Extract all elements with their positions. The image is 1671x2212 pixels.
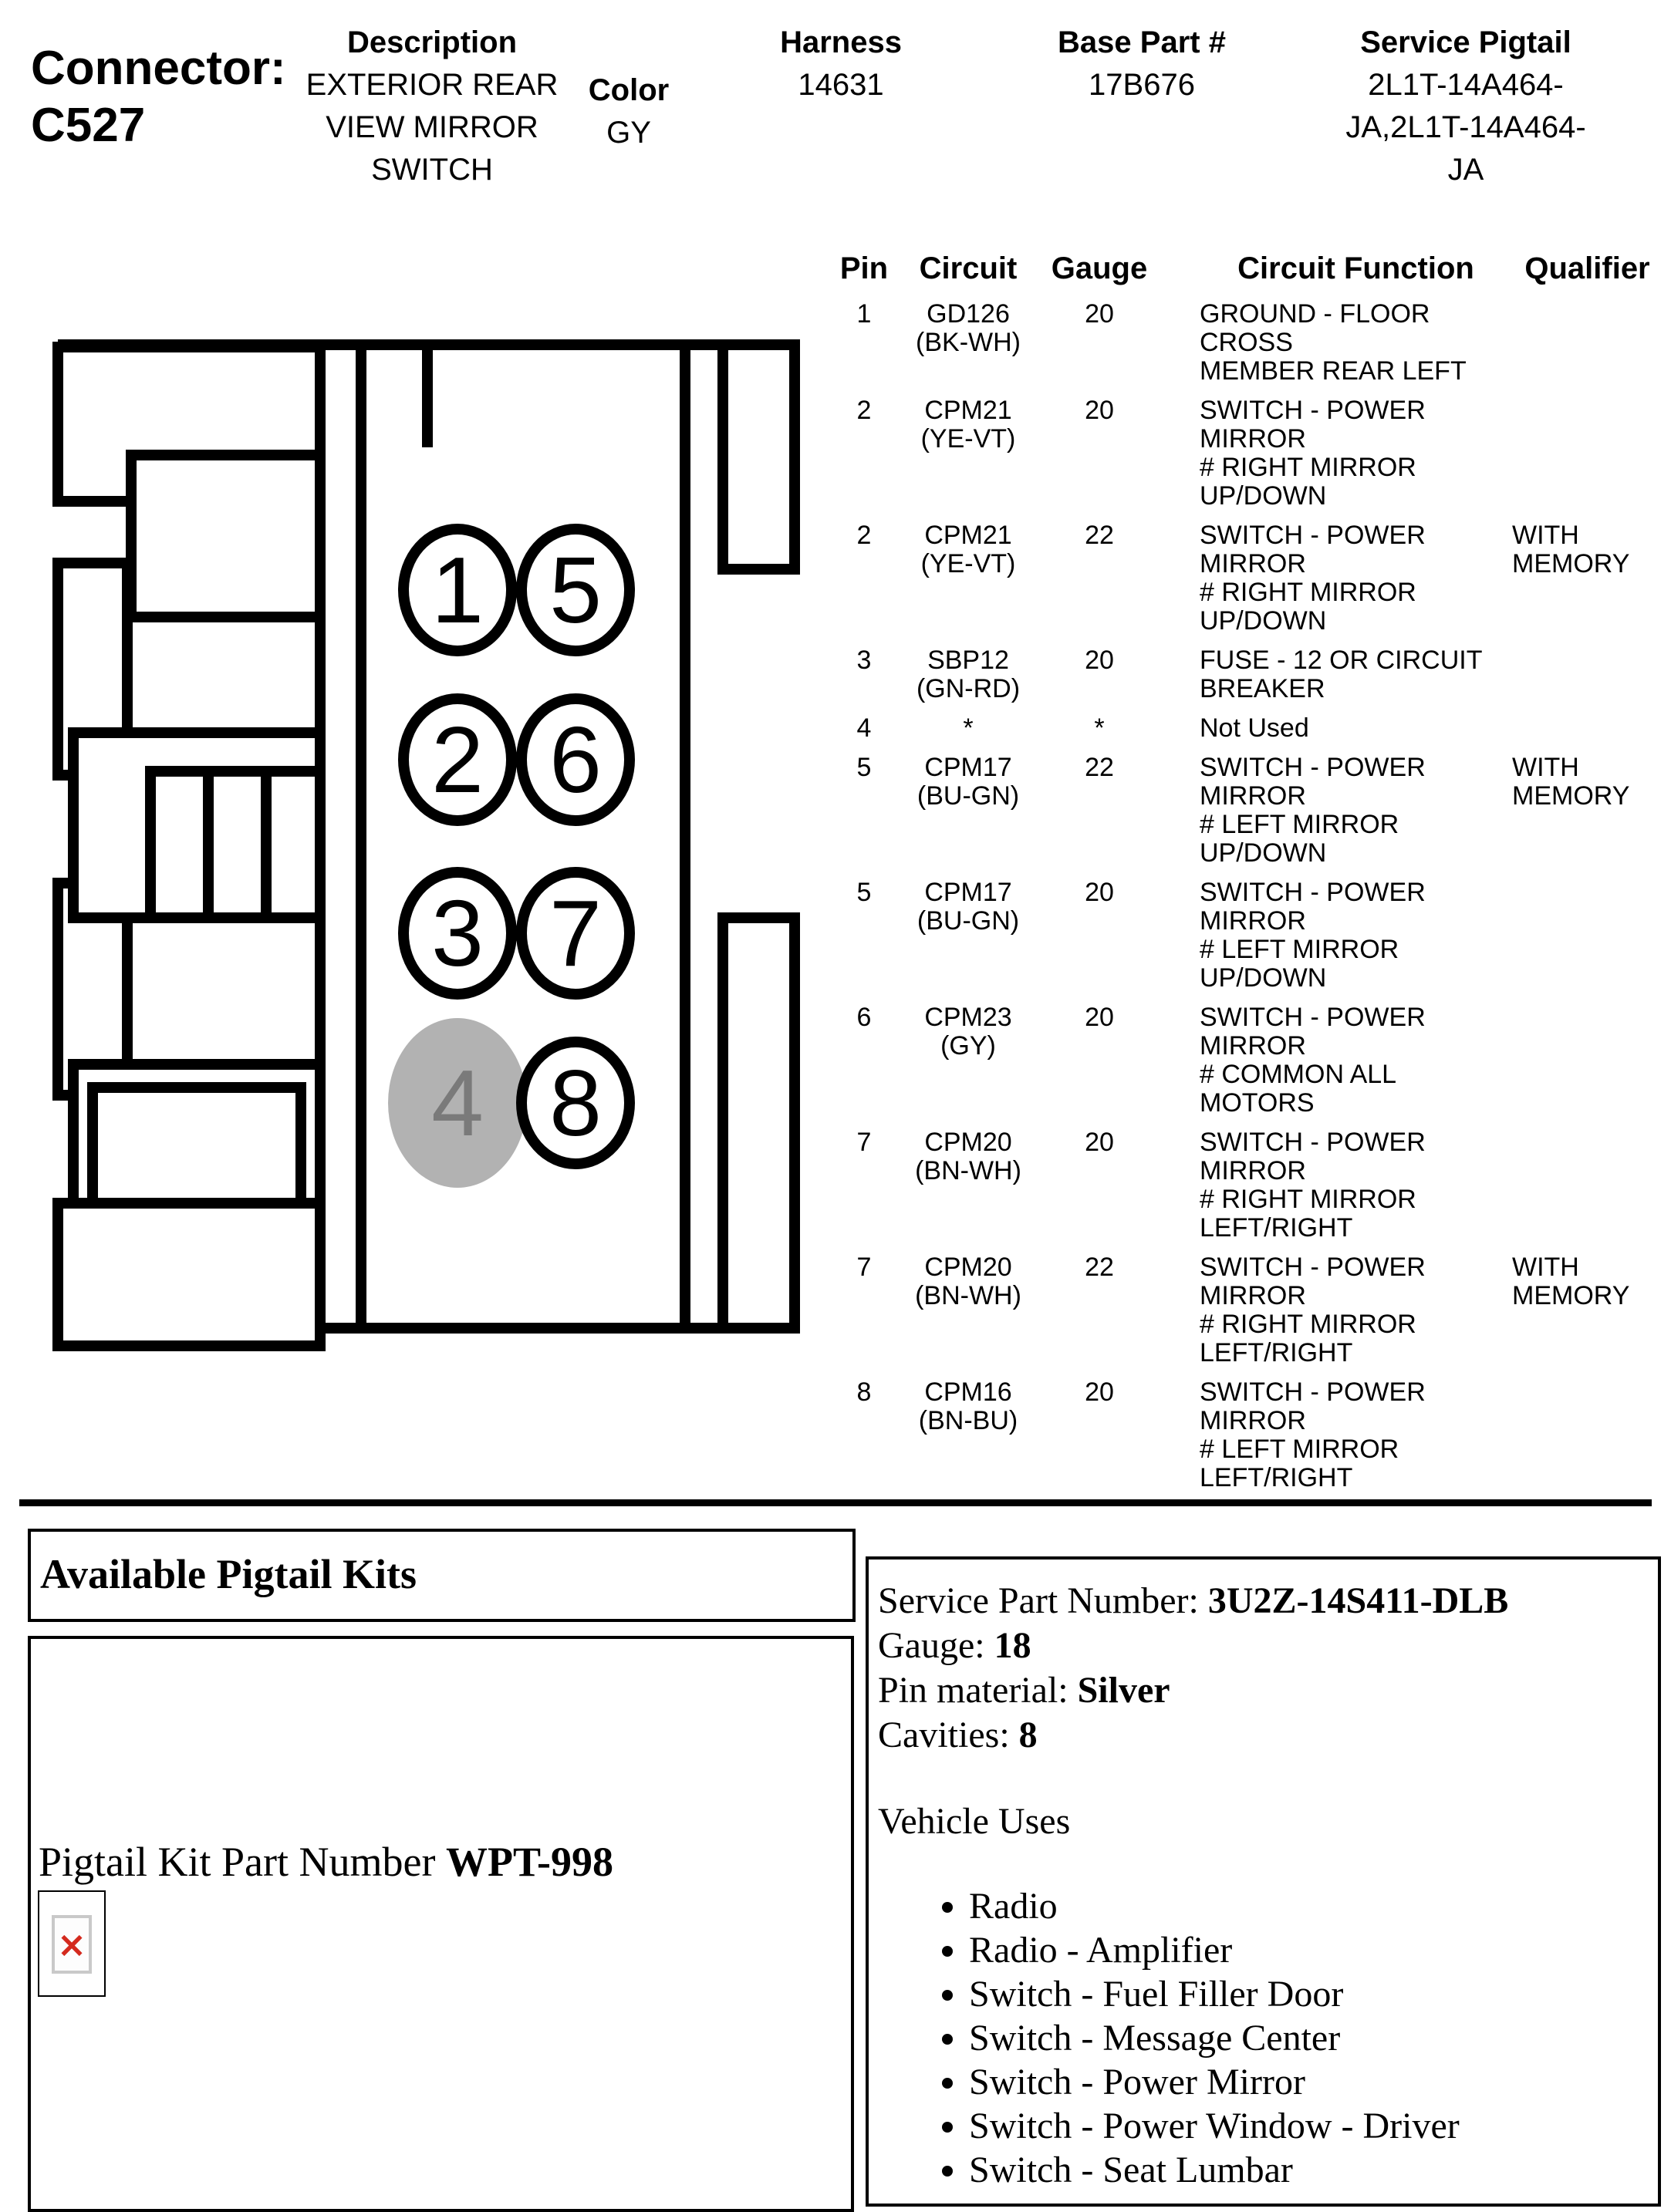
circuit-color-code: (BU-GN): [895, 782, 1041, 811]
circuit-id: CPM20: [895, 1253, 1041, 1282]
circuit-function-line: SWITCH - POWER MIRROR: [1200, 1128, 1512, 1185]
circuit-function-line: FUSE - 12 OR CIRCUIT: [1200, 646, 1512, 675]
circuit-function-line: # RIGHT MIRROR: [1200, 578, 1512, 607]
vehicle-use-item: Switch - Power Mirror: [969, 2060, 1647, 2104]
cell-circuit-function: SWITCH - POWER MIRROR# RIGHT MIRRORUP/DO…: [1157, 396, 1512, 511]
circuit-function-line: # LEFT MIRROR UP/DOWN: [1200, 811, 1512, 868]
circuit-id: CPM23: [895, 1003, 1041, 1032]
circuit-function-line: SWITCH - POWER MIRROR: [1200, 1378, 1512, 1435]
connector-face-diagram: 12345678: [46, 324, 810, 1361]
cell-qualifier: [1512, 646, 1663, 703]
available-pigtail-kits-title: Available Pigtail Kits: [40, 1551, 417, 1597]
circuit-id: CPM17: [895, 878, 1041, 907]
header-value-line: 14631: [756, 64, 926, 106]
cell-pin: 5: [833, 878, 895, 993]
header-col-service-pigtail: Service Pigtail 2L1T-14A464-JA,2L1T-14A4…: [1323, 22, 1609, 191]
pin-number: 6: [549, 707, 602, 812]
circuit-id: CPM21: [895, 396, 1041, 425]
pigtail-kit-box: Pigtail Kit Part Number WPT-998 ×: [28, 1636, 854, 2212]
circuit-function-line: # LEFT MIRROR: [1200, 1435, 1512, 1464]
cell-circuit-function: SWITCH - POWER MIRROR# LEFT MIRROR UP/DO…: [1157, 878, 1512, 993]
cell-circuit: CPM23 (GY): [895, 1003, 1041, 1118]
cell-pin: 7: [833, 1128, 895, 1243]
pin-table: Pin Circuit Gauge Circuit Function Quali…: [833, 251, 1663, 1503]
circuit-function-line: UP/DOWN: [1200, 482, 1512, 511]
cell-qualifier: [1512, 878, 1663, 993]
cell-qualifier: [1512, 1003, 1663, 1118]
circuit-function-line: GROUND - FLOOR CROSS: [1200, 300, 1512, 357]
pin-table-header-gauge: Gauge: [1041, 251, 1157, 286]
detail-value: 18: [994, 1625, 1031, 1666]
circuit-id: *: [895, 714, 1041, 743]
cell-circuit: CPM21 (YE-VT): [895, 396, 1041, 511]
header-col-description: Description EXTERIOR REARVIEW MIRRORSWIT…: [270, 22, 594, 191]
qualifier-line: MEMORY: [1512, 782, 1663, 811]
cell-pin: 6: [833, 1003, 895, 1118]
pin-number: 5: [549, 538, 602, 642]
table-row: 7 CPM20 (BN-WH) 22 SWITCH - POWER MIRROR…: [833, 1253, 1663, 1367]
vehicle-use-item: Switch - Message Center: [969, 2016, 1647, 2060]
table-row: 4 * * Not Used: [833, 714, 1663, 743]
vehicle-use-item: Switch - Seat Lumbar: [969, 2148, 1647, 2192]
connector-title: Connector: C527: [31, 40, 286, 154]
circuit-function-line: SWITCH - POWER MIRROR: [1200, 1253, 1512, 1310]
table-row: 5 CPM17 (BU-GN) 22 SWITCH - POWER MIRROR…: [833, 754, 1663, 868]
vehicle-use-item: Radio: [969, 1884, 1647, 1928]
header-value-service-pigtail: 2L1T-14A464-JA,2L1T-14A464-JA: [1323, 64, 1609, 191]
circuit-function-line: # RIGHT MIRROR: [1200, 454, 1512, 482]
pin-number: 2: [431, 707, 484, 812]
header-label-description: Description: [270, 22, 594, 64]
vehicle-uses-list: RadioRadio - AmplifierSwitch - Fuel Fill…: [878, 1884, 1647, 2192]
circuit-function-line: SWITCH - POWER MIRROR: [1200, 396, 1512, 454]
table-row: 2 CPM21 (YE-VT) 22 SWITCH - POWER MIRROR…: [833, 521, 1663, 636]
cell-qualifier: WITHMEMORY: [1512, 1253, 1663, 1367]
connector-label: Connector:: [31, 40, 286, 97]
pigtail-kit-line: Pigtail Kit Part Number WPT-998: [39, 1838, 613, 1886]
notch-top-right: [723, 345, 795, 569]
circuit-function-line: SWITCH - POWER MIRROR: [1200, 1003, 1512, 1060]
circuit-function-line: # RIGHT MIRROR: [1200, 1310, 1512, 1339]
tab-middle-inner: [150, 771, 320, 918]
circuit-function-line: BREAKER: [1200, 675, 1512, 703]
circuit-function-line: Not Used: [1200, 714, 1512, 743]
cell-pin: 5: [833, 754, 895, 868]
table-row: 6 CPM23 (GY) 20 SWITCH - POWER MIRROR# C…: [833, 1003, 1663, 1118]
header-value-line: JA,2L1T-14A464-: [1323, 106, 1609, 149]
tab-second: [131, 455, 320, 617]
service-part-box: Service Part Number: 3U2Z-14S411-DLB Gau…: [866, 1556, 1661, 2207]
detail-label: Service Part Number:: [878, 1580, 1208, 1621]
table-row: 7 CPM20 (BN-WH) 20 SWITCH - POWER MIRROR…: [833, 1128, 1663, 1243]
detail-line: Gauge: 18: [878, 1624, 1647, 1668]
circuit-id: CPM16: [895, 1378, 1041, 1407]
detail-label: Pin material:: [878, 1670, 1078, 1711]
header-value-line: SWITCH: [270, 149, 594, 191]
circuit-color-code: (GN-RD): [895, 675, 1041, 703]
circuit-function-line: # LEFT MIRROR UP/DOWN: [1200, 936, 1512, 993]
cell-circuit-function: GROUND - FLOOR CROSSMEMBER REAR LEFT: [1157, 300, 1512, 386]
cell-circuit: CPM20 (BN-WH): [895, 1253, 1041, 1367]
circuit-function-line: UP/DOWN: [1200, 607, 1512, 636]
header-label-harness: Harness: [756, 22, 926, 64]
cell-circuit-function: SWITCH - POWER MIRROR# RIGHT MIRRORUP/DO…: [1157, 521, 1512, 636]
detail-line: Service Part Number: 3U2Z-14S411-DLB: [878, 1579, 1647, 1624]
circuit-function-line: SWITCH - POWER MIRROR: [1200, 754, 1512, 811]
cell-circuit: CPM20 (BN-WH): [895, 1128, 1041, 1243]
circuit-function-line: # COMMON ALL MOTORS: [1200, 1060, 1512, 1118]
pin-table-header-pin: Pin: [833, 251, 895, 286]
cell-circuit: *: [895, 714, 1041, 743]
cell-circuit-function: SWITCH - POWER MIRROR# COMMON ALL MOTORS: [1157, 1003, 1512, 1118]
circuit-function-line: LEFT/RIGHT: [1200, 1464, 1512, 1492]
pin-table-body: 1 GD126 (BK-WH) 20 GROUND - FLOOR CROSSM…: [833, 300, 1663, 1492]
tab-bottom: [58, 1203, 320, 1346]
connector-left-tabs: [58, 347, 320, 1346]
circuit-function-line: MEMBER REAR LEFT: [1200, 357, 1512, 386]
pin-number: 8: [549, 1050, 602, 1155]
cell-qualifier: [1512, 714, 1663, 743]
header-value-description: EXTERIOR REARVIEW MIRRORSWITCH: [270, 64, 594, 191]
pin-table-header-function: Circuit Function: [1157, 251, 1512, 286]
cell-qualifier: [1512, 1128, 1663, 1243]
vehicle-use-item: Radio - Amplifier: [969, 1928, 1647, 1972]
notch-bottom-right: [723, 918, 795, 1328]
cell-pin: 3: [833, 646, 895, 703]
circuit-color-code: (GY): [895, 1032, 1041, 1060]
circuit-id: CPM20: [895, 1128, 1041, 1157]
service-part-details: Service Part Number: 3U2Z-14S411-DLB Gau…: [878, 1579, 1647, 1758]
cell-circuit: CPM17 (BU-GN): [895, 754, 1041, 868]
circuit-function-line: SWITCH - POWER MIRROR: [1200, 521, 1512, 578]
cell-pin: 2: [833, 396, 895, 511]
cell-qualifier: WITHMEMORY: [1512, 754, 1663, 868]
header-col-color: Color GY: [567, 69, 690, 154]
vehicle-use-item: Switch - Power Window - Driver: [969, 2104, 1647, 2148]
cell-gauge: 20: [1041, 1378, 1157, 1492]
cell-gauge: 22: [1041, 521, 1157, 636]
cell-circuit-function: Not Used: [1157, 714, 1512, 743]
header-label-base-part: Base Part #: [1034, 22, 1250, 64]
cell-circuit-function: SWITCH - POWER MIRROR# LEFT MIRRORLEFT/R…: [1157, 1378, 1512, 1492]
cell-circuit-function: FUSE - 12 OR CIRCUITBREAKER: [1157, 646, 1512, 703]
header-value-line: EXTERIOR REAR: [270, 64, 594, 106]
table-row: 1 GD126 (BK-WH) 20 GROUND - FLOOR CROSSM…: [833, 300, 1663, 386]
cell-pin: 1: [833, 300, 895, 386]
cell-gauge: 20: [1041, 300, 1157, 386]
qualifier-line: MEMORY: [1512, 1282, 1663, 1310]
header-label-service-pigtail: Service Pigtail: [1323, 22, 1609, 64]
qualifier-line: MEMORY: [1512, 550, 1663, 578]
table-row: 5 CPM17 (BU-GN) 20 SWITCH - POWER MIRROR…: [833, 878, 1663, 993]
header-value-color: GY: [567, 112, 690, 154]
section-divider-rule: [19, 1499, 1652, 1506]
broken-image-icon: ×: [52, 1915, 92, 1974]
circuit-color-code: (YE-VT): [895, 425, 1041, 454]
circuit-color-code: (BK-WH): [895, 329, 1041, 357]
cell-circuit-function: SWITCH - POWER MIRROR# LEFT MIRROR UP/DO…: [1157, 754, 1512, 868]
pin-number: 7: [549, 881, 602, 986]
detail-value: Silver: [1078, 1670, 1170, 1711]
cell-pin: 2: [833, 521, 895, 636]
circuit-function-line: LEFT/RIGHT: [1200, 1339, 1512, 1367]
detail-value: 8: [1019, 1715, 1038, 1755]
table-row: 3 SBP12 (GN-RD) 20 FUSE - 12 OR CIRCUITB…: [833, 646, 1663, 703]
detail-label: Gauge:: [878, 1625, 994, 1666]
cell-gauge: 20: [1041, 396, 1157, 511]
cell-pin: 4: [833, 714, 895, 743]
connector-id: C527: [31, 97, 286, 154]
header-value-line: GY: [567, 112, 690, 154]
circuit-color-code: (BU-GN): [895, 907, 1041, 936]
circuit-function-line: LEFT/RIGHT: [1200, 1214, 1512, 1243]
header-col-base-part: Base Part # 17B676: [1034, 22, 1250, 106]
cell-qualifier: [1512, 300, 1663, 386]
vehicle-uses-title: Vehicle Uses: [878, 1799, 1647, 1844]
header-col-harness: Harness 14631: [756, 22, 926, 106]
header-value-line: 2L1T-14A464-: [1323, 64, 1609, 106]
circuit-color-code: (BN-WH): [895, 1157, 1041, 1185]
cell-circuit: CPM21 (YE-VT): [895, 521, 1041, 636]
detail-line: Pin material: Silver: [878, 1668, 1647, 1713]
cell-circuit-function: SWITCH - POWER MIRROR# RIGHT MIRRORLEFT/…: [1157, 1128, 1512, 1243]
header-value-line: JA: [1323, 149, 1609, 191]
circuit-id: CPM21: [895, 521, 1041, 550]
table-row: 8 CPM16 (BN-BU) 20 SWITCH - POWER MIRROR…: [833, 1378, 1663, 1492]
header-value-harness: 14631: [756, 64, 926, 106]
qualifier-line: WITH: [1512, 521, 1663, 550]
detail-value: 3U2Z-14S411-DLB: [1208, 1580, 1508, 1621]
available-pigtail-kits-header: Available Pigtail Kits: [28, 1529, 856, 1622]
cell-circuit: SBP12 (GN-RD): [895, 646, 1041, 703]
cell-gauge: 20: [1041, 646, 1157, 703]
circuit-function-line: # RIGHT MIRROR: [1200, 1185, 1512, 1214]
pigtail-kit-number: WPT-998: [446, 1839, 613, 1885]
pin-number: 1: [431, 538, 484, 642]
pin-table-header-qualifier: Qualifier: [1512, 251, 1663, 286]
pin-number: 3: [431, 881, 484, 986]
cell-qualifier: [1512, 396, 1663, 511]
qualifier-line: WITH: [1512, 754, 1663, 782]
cell-gauge: 20: [1041, 1003, 1157, 1118]
cell-circuit-function: SWITCH - POWER MIRROR# RIGHT MIRRORLEFT/…: [1157, 1253, 1512, 1367]
detail-line: Cavities: 8: [878, 1713, 1647, 1758]
cell-pin: 7: [833, 1253, 895, 1367]
pin-table-header: Pin Circuit Gauge Circuit Function Quali…: [833, 251, 1663, 286]
pigtail-kit-label: Pigtail Kit Part Number: [39, 1839, 446, 1885]
circuit-color-code: (BN-WH): [895, 1282, 1041, 1310]
cell-gauge: 20: [1041, 1128, 1157, 1243]
cell-pin: 8: [833, 1378, 895, 1492]
circuit-id: CPM17: [895, 754, 1041, 782]
vehicle-use-item: Switch - Fuel Filler Door: [969, 1972, 1647, 2016]
cell-gauge: 20: [1041, 878, 1157, 993]
header-value-line: 17B676: [1034, 64, 1250, 106]
pin-table-header-circuit: Circuit: [895, 251, 1041, 286]
cell-gauge: 22: [1041, 754, 1157, 868]
circuit-id: GD126: [895, 300, 1041, 329]
pin-group: 12345678: [388, 529, 630, 1188]
image-placeholder: ×: [38, 1890, 106, 1997]
pin-number: 4: [431, 1050, 484, 1155]
qualifier-line: WITH: [1512, 1253, 1663, 1282]
circuit-color-code: (YE-VT): [895, 550, 1041, 578]
circuit-color-code: (BN-BU): [895, 1407, 1041, 1435]
circuit-function-line: SWITCH - POWER MIRROR: [1200, 878, 1512, 936]
header-value-line: VIEW MIRROR: [270, 106, 594, 149]
cell-qualifier: WITHMEMORY: [1512, 521, 1663, 636]
cell-circuit: CPM17 (BU-GN): [895, 878, 1041, 993]
circuit-id: SBP12: [895, 646, 1041, 675]
cell-circuit: GD126 (BK-WH): [895, 300, 1041, 386]
header-label-color: Color: [567, 69, 690, 112]
cell-qualifier: [1512, 1378, 1663, 1492]
detail-label: Cavities:: [878, 1715, 1019, 1755]
cell-gauge: 22: [1041, 1253, 1157, 1367]
cell-circuit: CPM16 (BN-BU): [895, 1378, 1041, 1492]
table-row: 2 CPM21 (YE-VT) 20 SWITCH - POWER MIRROR…: [833, 396, 1663, 511]
header-value-base-part: 17B676: [1034, 64, 1250, 106]
cell-gauge: *: [1041, 714, 1157, 743]
